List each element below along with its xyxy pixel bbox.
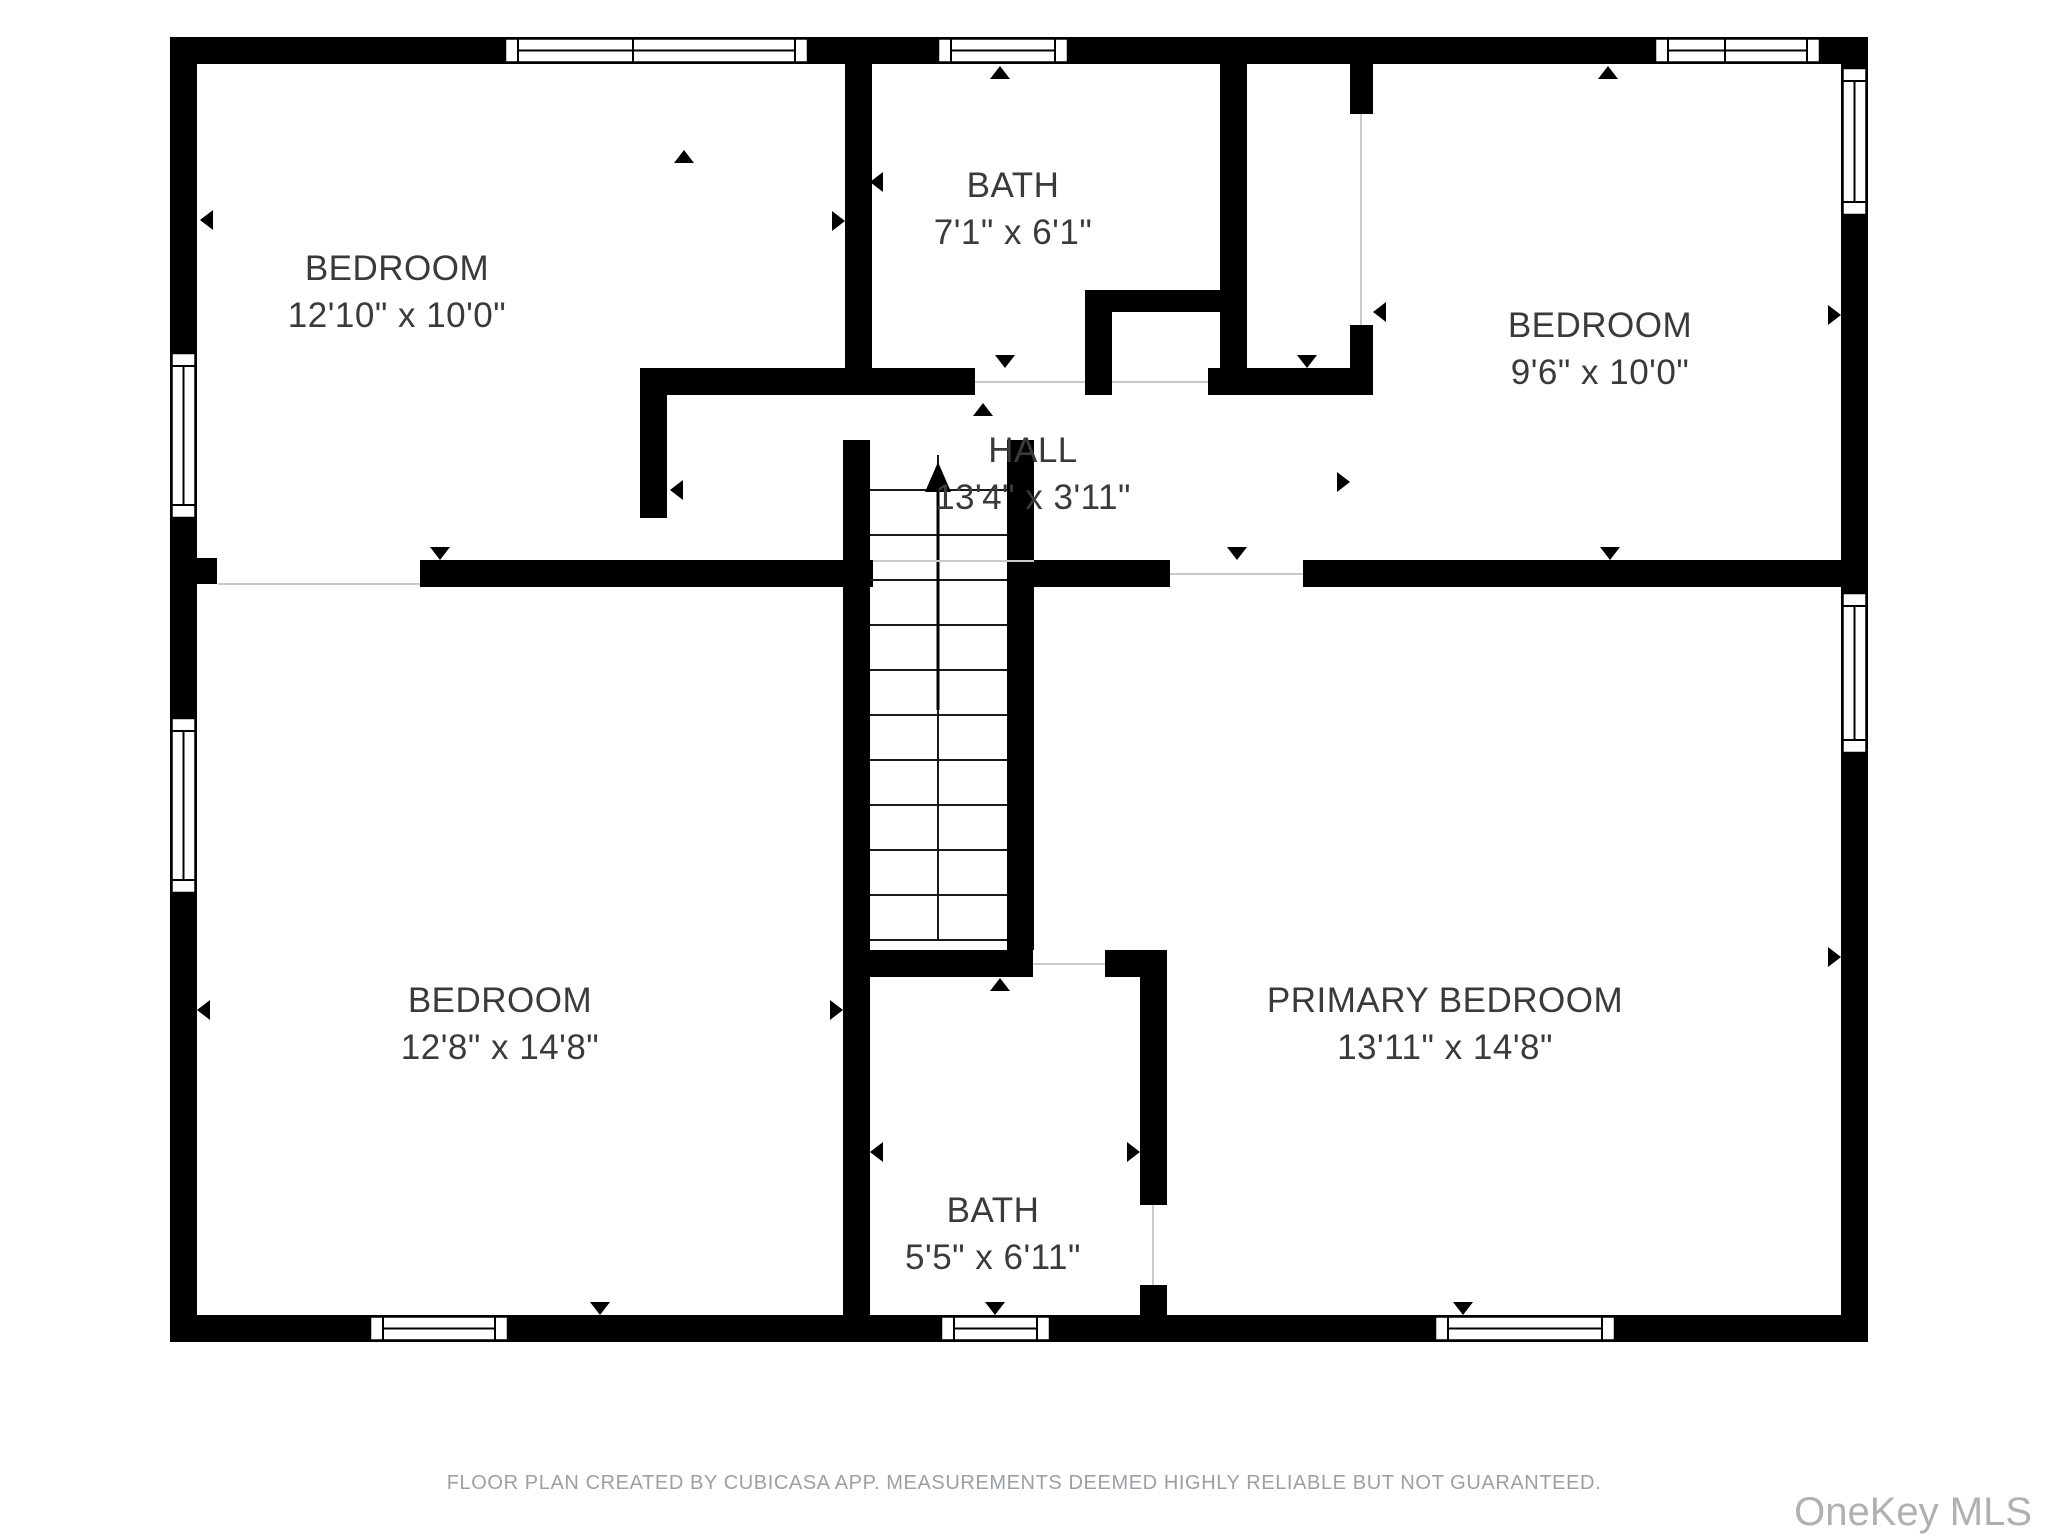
window-icon — [938, 39, 1068, 63]
door-marker-up-icon — [990, 978, 1010, 991]
wall — [197, 558, 217, 584]
door-marker-up-icon — [674, 150, 694, 163]
window-icon — [370, 1317, 508, 1341]
room-label: BEDROOM — [305, 249, 489, 288]
door-marker-left-icon — [670, 480, 683, 500]
floor-plan-page: BEDROOM12'10" x 10'0"BATH7'1" x 6'1"BEDR… — [0, 0, 2048, 1536]
door-marker-down-icon — [1453, 1302, 1473, 1315]
door-marker-right-icon — [1828, 947, 1841, 967]
wall — [640, 368, 667, 518]
room-label: BEDROOM — [408, 981, 592, 1020]
door-marker-left-icon — [1373, 302, 1386, 322]
door-marker-down-icon — [985, 1302, 1005, 1315]
room-label: BEDROOM — [1508, 306, 1692, 345]
room-label: HALL — [988, 431, 1078, 470]
wall — [1220, 64, 1247, 395]
room-label: BATH — [967, 166, 1060, 205]
wall — [1208, 368, 1352, 395]
window-icon — [1843, 593, 1867, 753]
wall — [843, 950, 1033, 977]
room-dims: 5'5" x 6'11" — [905, 1238, 1081, 1277]
window-icon — [172, 718, 196, 893]
door-marker-down-icon — [1600, 547, 1620, 560]
wall — [1140, 950, 1167, 1205]
window-icon — [1843, 68, 1867, 215]
room-dims: 7'1" x 6'1" — [934, 213, 1093, 252]
door-marker-right-icon — [1337, 472, 1350, 492]
room-labels-group: BEDROOM12'10" x 10'0"BATH7'1" x 6'1"BEDR… — [288, 166, 1692, 1277]
door-marker-up-icon — [1598, 66, 1618, 79]
wall — [420, 560, 873, 587]
window-icon — [1655, 39, 1820, 63]
door-opening-lines-group — [218, 114, 1361, 1285]
door-marker-up-icon — [990, 66, 1010, 79]
window-icon — [505, 39, 808, 63]
wall — [845, 64, 872, 368]
window-icon — [172, 353, 196, 518]
window-icon — [941, 1317, 1050, 1341]
mls-watermark: OneKey MLS — [1794, 1490, 2032, 1535]
door-marker-right-icon — [830, 1000, 843, 1020]
room-dims: 12'10" x 10'0" — [288, 296, 506, 335]
door-marker-down-icon — [1297, 355, 1317, 368]
door-marker-left-icon — [200, 210, 213, 230]
room-label: BATH — [947, 1191, 1040, 1230]
door-marker-down-icon — [430, 547, 450, 560]
door-marker-left-icon — [870, 1142, 883, 1162]
door-marker-down-icon — [590, 1302, 610, 1315]
room-dims: 13'11" x 14'8" — [1337, 1028, 1553, 1067]
room-dims: 13'4" x 3'11" — [935, 478, 1131, 517]
wall — [1085, 290, 1220, 312]
footer-disclaimer: FLOOR PLAN CREATED BY CUBICASA APP. MEAS… — [0, 1472, 2048, 1495]
room-dims: 12'8" x 14'8" — [401, 1028, 599, 1067]
door-marker-up-icon — [973, 403, 993, 416]
floor-plan-svg: BEDROOM12'10" x 10'0"BATH7'1" x 6'1"BEDR… — [0, 0, 2048, 1536]
wall — [1140, 1285, 1167, 1315]
door-marker-down-icon — [995, 355, 1015, 368]
door-marker-right-icon — [1828, 305, 1841, 325]
wall — [170, 37, 197, 1342]
room-label: PRIMARY BEDROOM — [1267, 981, 1623, 1020]
wall — [1350, 64, 1373, 114]
wall — [843, 440, 870, 1315]
wall — [1034, 560, 1170, 587]
door-marker-right-icon — [832, 211, 845, 231]
wall — [640, 368, 975, 395]
room-dims: 9'6" x 10'0" — [1511, 353, 1690, 392]
door-marker-left-icon — [197, 1000, 210, 1020]
wall — [1350, 325, 1373, 395]
wall — [1303, 560, 1841, 587]
stairs — [870, 455, 1007, 940]
door-marker-right-icon — [1127, 1142, 1140, 1162]
door-marker-down-icon — [1227, 547, 1247, 560]
window-icon — [1435, 1317, 1615, 1341]
